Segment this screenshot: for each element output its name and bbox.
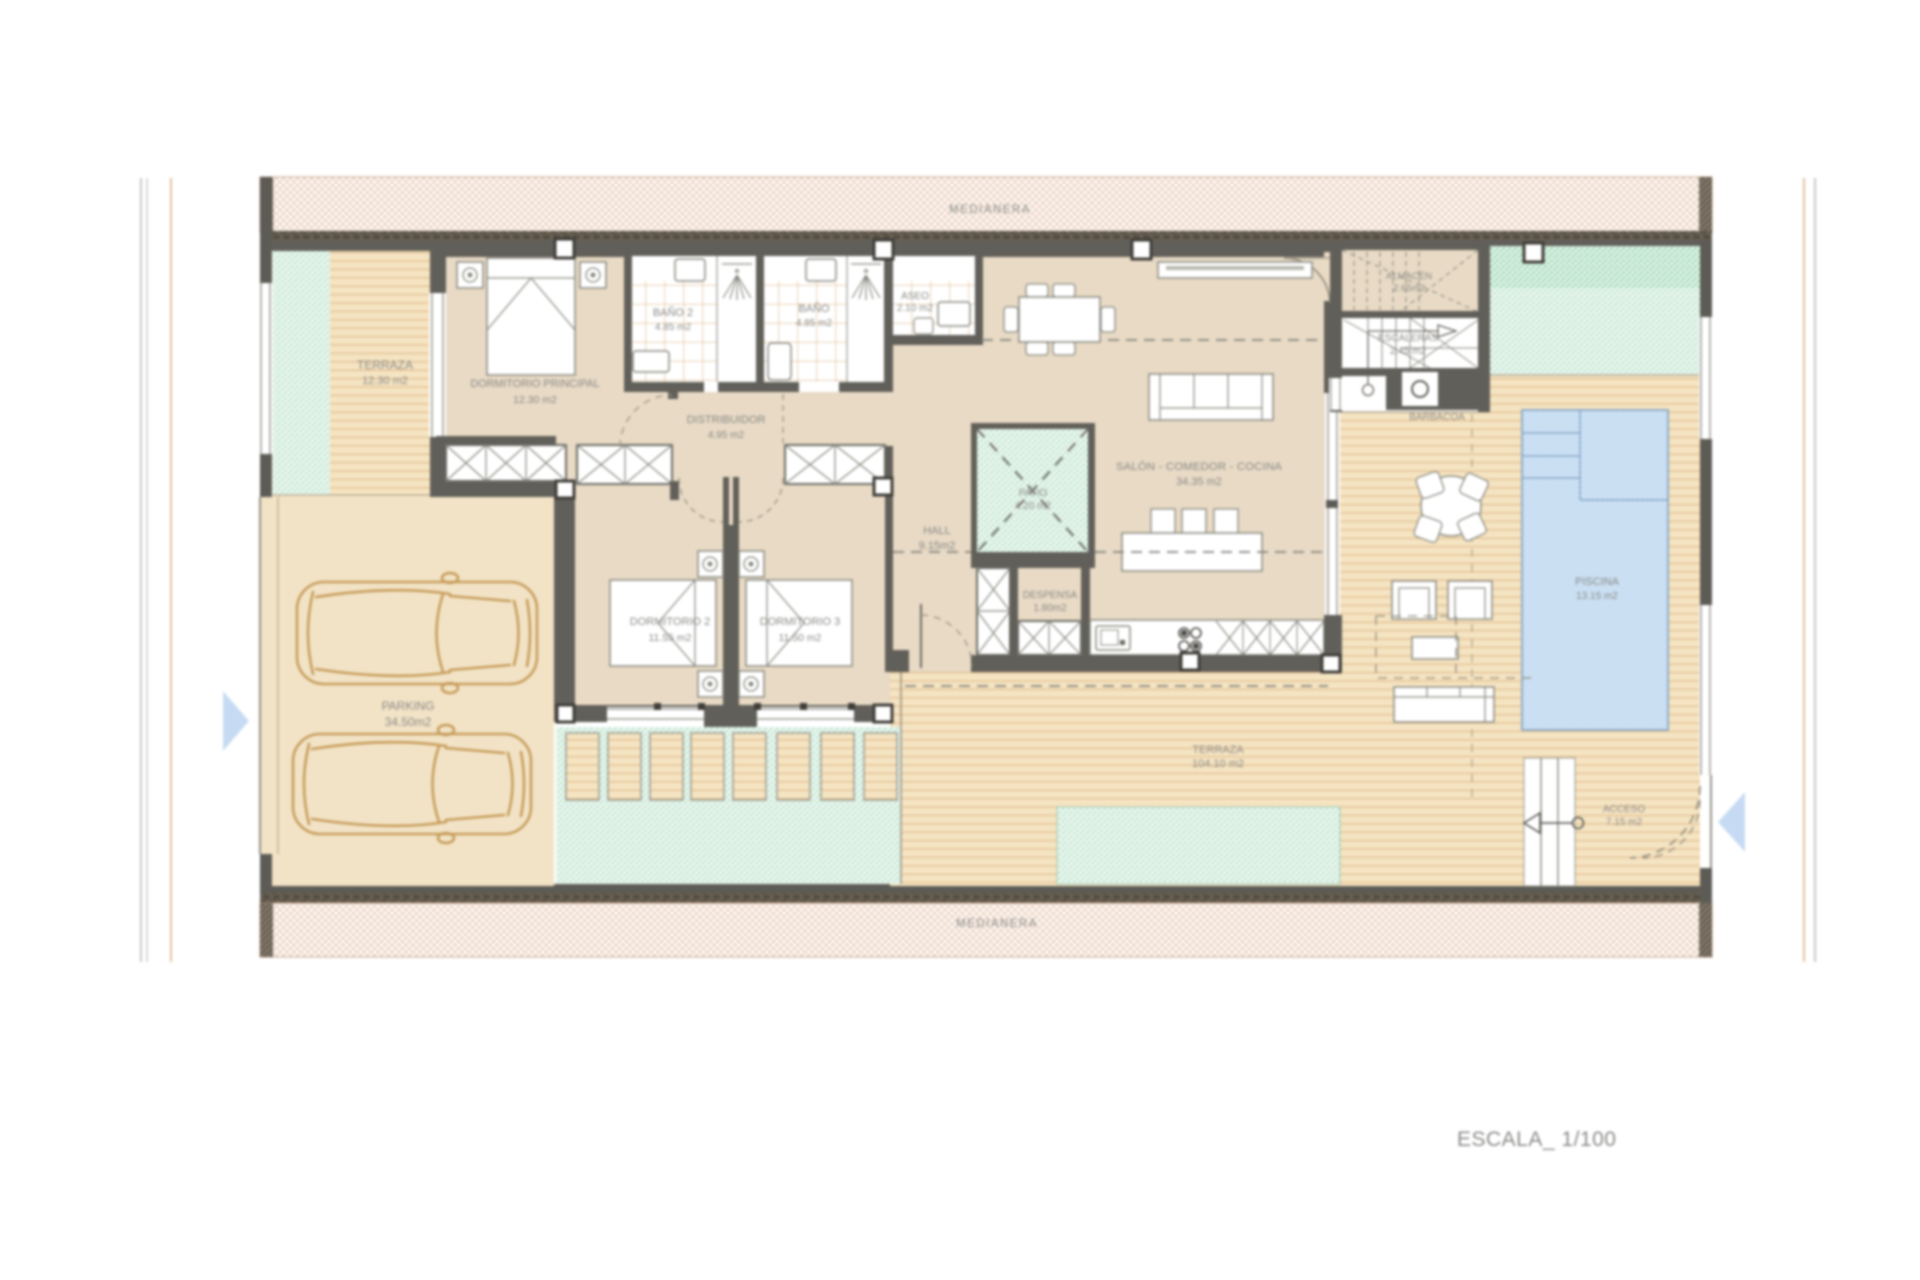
svg-text:11.50 m2: 11.50 m2 [779,632,822,644]
svg-text:BARBACOA: BARBACOA [1409,412,1465,423]
svg-text:ALMACÉN: ALMACÉN [1386,271,1432,282]
svg-text:HALL: HALL [923,525,951,537]
svg-text:2.65m2: 2.65m2 [1393,283,1425,294]
svg-text:SALÓN - COMEDOR - COCINA: SALÓN - COMEDOR - COCINA [1116,460,1282,473]
svg-text:MEDIANERA: MEDIANERA [949,204,1031,216]
svg-text:4.85 m2: 4.85 m2 [796,318,833,329]
svg-text:MEDIANERA: MEDIANERA [956,918,1038,930]
svg-text:9.15m2: 9.15m2 [919,540,956,552]
svg-text:PISCINA: PISCINA [1575,576,1620,588]
svg-text:34.35 m2: 34.35 m2 [1176,476,1222,488]
svg-text:ESCALERAS: ESCALERAS [1378,333,1438,344]
svg-text:4.85 m2: 4.85 m2 [655,322,692,333]
svg-text:DESPENSA: DESPENSA [1023,590,1078,601]
svg-text:DISTRIBUIDOR: DISTRIBUIDOR [687,414,766,426]
svg-text:2.45 m2: 2.45 m2 [1390,346,1427,357]
svg-text:PARKING: PARKING [381,699,434,713]
svg-text:TERRAZA: TERRAZA [1192,744,1244,756]
svg-text:2.10 m2: 2.10 m2 [897,303,934,314]
svg-text:BAÑO: BAÑO [798,302,830,315]
svg-text:104.10 m2: 104.10 m2 [1192,758,1244,770]
svg-text:DORMITORIO PRINCIPAL: DORMITORIO PRINCIPAL [470,378,599,390]
svg-text:12.30 m2: 12.30 m2 [362,375,408,387]
svg-text:4.20 m2: 4.20 m2 [1015,501,1052,512]
svg-text:PATIO: PATIO [1019,488,1048,499]
svg-text:ASEO: ASEO [901,291,929,302]
svg-text:BAÑO 2: BAÑO 2 [653,306,693,319]
svg-text:1.80m2: 1.80m2 [1033,603,1067,614]
svg-text:DORMITORIO 2: DORMITORIO 2 [630,616,710,628]
svg-text:11.55 m2: 11.55 m2 [649,632,692,644]
svg-text:34.50m2: 34.50m2 [385,715,432,729]
svg-text:13.15 m2: 13.15 m2 [1576,591,1618,602]
svg-text:ESCALA_ 1/100: ESCALA_ 1/100 [1457,1128,1616,1151]
svg-text:12.30 m2: 12.30 m2 [513,394,557,406]
svg-text:7.15 m2: 7.15 m2 [1606,817,1643,828]
svg-text:4.95 m2: 4.95 m2 [708,430,745,441]
svg-text:TERRAZA: TERRAZA [357,358,413,372]
svg-text:DORMITORIO 3: DORMITORIO 3 [760,616,840,628]
svg-text:ACCESO: ACCESO [1603,804,1645,815]
